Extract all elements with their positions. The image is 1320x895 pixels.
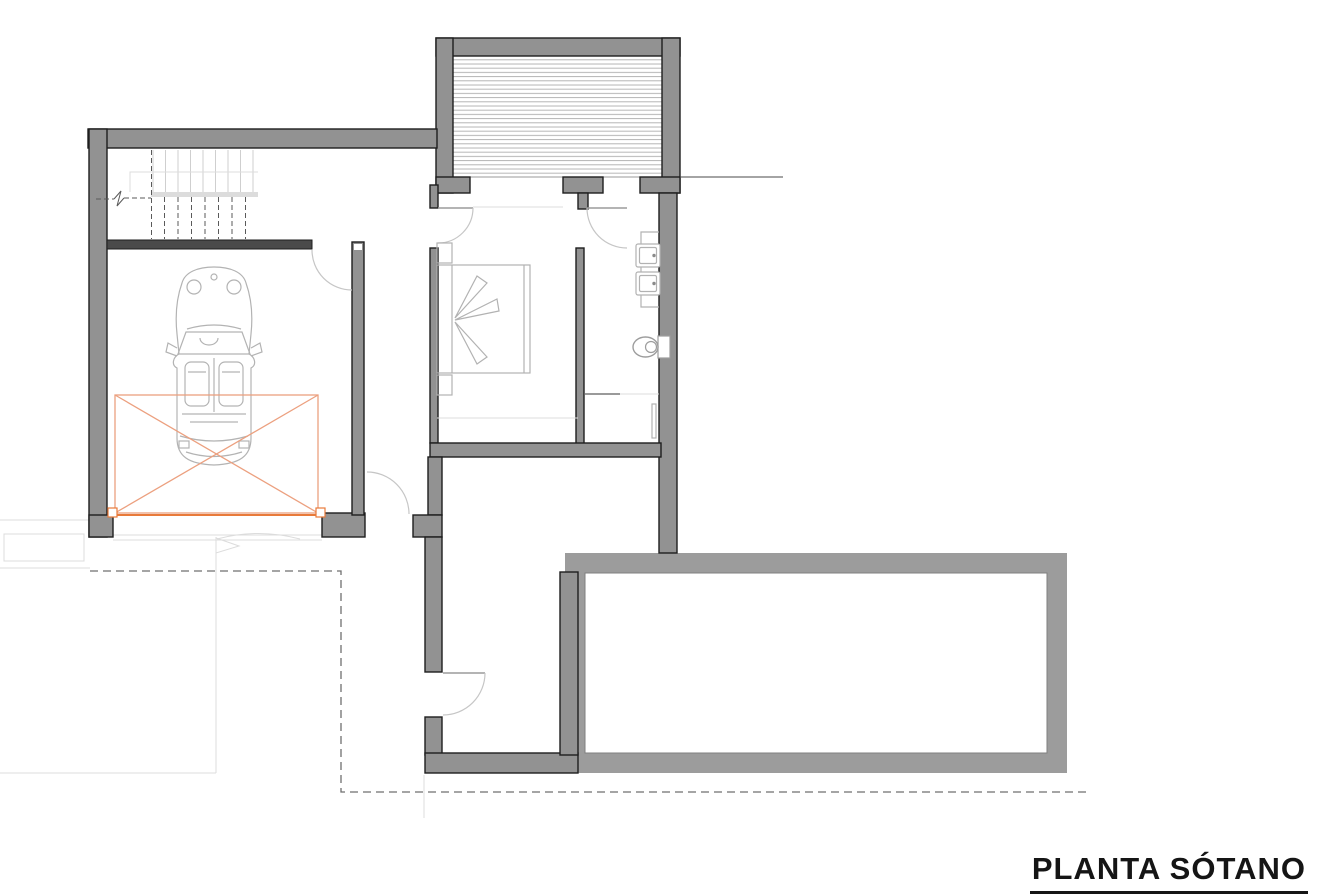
car-headlight-left <box>187 280 201 294</box>
site-rectangle <box>4 534 84 561</box>
car-taillight-right <box>239 441 249 448</box>
garage-ramp-enclosure <box>436 38 783 209</box>
car-dashboard <box>200 338 218 345</box>
bedroom-bottom-wall <box>430 443 661 457</box>
garage-door-jamb-right <box>322 513 365 537</box>
pool <box>565 553 1067 773</box>
stair-landing-edge <box>151 192 258 197</box>
garage-door-jamb-left <box>89 515 113 537</box>
enclosure-top-wall <box>436 38 680 56</box>
nightstand <box>437 243 452 263</box>
lower-room-right-wall <box>560 572 578 755</box>
wall-end-cap <box>354 244 362 250</box>
corridor-door-swing <box>367 472 409 514</box>
car-windshield <box>178 332 250 354</box>
bedroom-door-swing <box>438 208 473 243</box>
enclosure-bottom-wall <box>436 177 470 193</box>
lower-room-left-wall <box>425 717 442 755</box>
shower-glass-door <box>652 404 656 438</box>
roller-shutter-hatch <box>453 56 662 177</box>
bedroom-furniture <box>437 243 578 418</box>
lower-room-door-swing <box>443 673 485 715</box>
car-rear-deck <box>182 414 246 422</box>
door-jamb-stub <box>430 185 438 208</box>
lower-room-wall-jog <box>413 515 442 537</box>
bathroom-divider-wall <box>576 248 584 445</box>
stairs <box>96 150 258 239</box>
stair-hall-wall <box>107 240 312 249</box>
platform-anchor <box>108 508 117 517</box>
car-headlight-right <box>227 280 241 294</box>
stair-break-zigzag <box>114 191 124 206</box>
bathroom-door-swing <box>587 208 627 248</box>
bed-pillow <box>455 299 499 320</box>
stair-upper-outline <box>130 172 258 192</box>
nightstand <box>437 375 452 395</box>
left-exterior-wall <box>89 129 107 537</box>
platform-anchor <box>316 508 325 517</box>
sink-drain <box>652 254 655 257</box>
enclosure-right-wall <box>662 38 680 193</box>
lower-room-left-wall <box>425 537 442 672</box>
car-mirror-right <box>251 343 262 356</box>
enclosure-bottom-wall <box>563 177 603 193</box>
car-mirror-left <box>166 343 177 356</box>
floor-plan-page: PLANTA SÓTANO <box>0 0 1320 895</box>
vanity-counter <box>641 232 659 307</box>
garage-corridor-wall <box>352 242 364 515</box>
lower-room-bottom-wall <box>425 753 578 773</box>
enclosure-bottom-wall <box>640 177 680 193</box>
garage-door-swing <box>312 250 352 290</box>
car-cowl-line <box>187 325 241 329</box>
enclosure-left-wall <box>436 38 453 193</box>
enclosure-wall-tab <box>578 193 588 209</box>
car-taillight-left <box>179 441 189 448</box>
floor-plan-drawing <box>0 0 1320 895</box>
right-exterior-wall <box>659 193 677 553</box>
bathroom-fixtures <box>585 232 670 438</box>
top-exterior-wall <box>88 129 437 148</box>
drawing-title: PLANTA SÓTANO <box>1030 851 1308 894</box>
sink-drain <box>652 282 655 285</box>
interior-walls <box>107 240 661 773</box>
car-seat-right <box>219 362 243 406</box>
car-badge <box>211 274 217 280</box>
driveway-apron-arc <box>217 534 300 540</box>
pool-basin <box>585 573 1047 753</box>
site-reference-lines <box>0 520 424 818</box>
bed-pillow <box>455 322 487 364</box>
toilet-tank <box>658 336 670 358</box>
car-seat-left <box>185 362 209 406</box>
lower-room-left-wall <box>428 457 442 515</box>
